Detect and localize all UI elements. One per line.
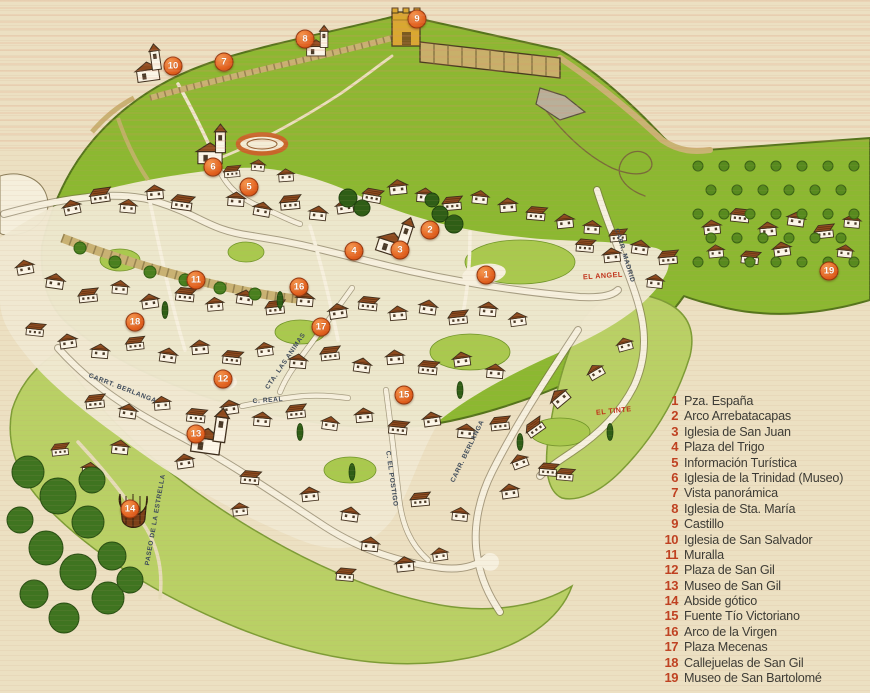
tree [144,266,156,278]
tree [60,554,96,590]
tree [29,531,63,565]
map-marker-16[interactable]: 16 [290,278,309,297]
legend-label: Arco Arrebatacapas [684,409,791,423]
legend-number: 17 [656,639,678,654]
legend-number: 15 [656,608,678,623]
tree [117,567,143,593]
tree [758,233,768,243]
legend-label: Fuente Tío Victoriano [684,609,800,623]
legend-number: 11 [656,547,678,562]
map-marker-2[interactable]: 2 [421,221,440,240]
legend-label: Iglesia de Sta. María [684,502,795,516]
map-marker-6[interactable]: 6 [204,158,223,177]
legend-label: Pza. España [684,394,753,408]
legend-number: 12 [656,562,678,577]
tree [445,215,463,233]
cypress-tree [162,302,168,319]
legend-number: 4 [656,439,678,454]
legend-number: 5 [656,455,678,470]
tree [823,209,833,219]
house [409,492,431,507]
legend-item-8: 8Iglesia de Sta. María [656,501,843,516]
legend-label: Información Turística [684,456,797,470]
legend-item-15: 15Fuente Tío Victoriano [656,608,843,623]
tree [771,161,781,171]
legend-item-14: 14Abside gótico [656,593,843,608]
tree [49,603,79,633]
map-marker-11[interactable]: 11 [187,271,206,290]
tree [836,233,846,243]
map-marker-9[interactable]: 9 [408,10,427,29]
legend-label: Iglesia de la Trinidad (Museo) [684,471,843,485]
legend-number: 2 [656,408,678,423]
legend-item-10: 10Iglesia de San Salvador [656,532,843,547]
legend-number: 7 [656,485,678,500]
tree [849,209,859,219]
tree [214,282,226,294]
legend-number: 8 [656,501,678,516]
legend-number: 14 [656,593,678,608]
tree [719,257,729,267]
house [450,506,469,521]
legend-label: Iglesia de San Salvador [684,533,812,547]
map-marker-15[interactable]: 15 [395,386,414,405]
tree [40,478,76,514]
legend-item-18: 18Callejuelas de San Gil [656,655,843,670]
church-building [132,43,164,82]
legend-item-13: 13Museo de San Gil [656,578,843,593]
house [538,463,559,477]
map-marker-4[interactable]: 4 [345,242,364,261]
legend-label: Arco de la Virgen [684,625,777,639]
map-marker-5[interactable]: 5 [240,178,259,197]
legend-item-6: 6Iglesia de la Trinidad (Museo) [656,470,843,485]
house [431,547,450,562]
map-marker-10[interactable]: 10 [164,57,183,76]
tree [693,209,703,219]
tree [20,580,48,608]
tree [72,506,104,538]
map-marker-3[interactable]: 3 [391,241,410,260]
tree [784,233,794,243]
legend-number: 10 [656,532,678,547]
legend-number: 16 [656,624,678,639]
legend-label: Plaza de San Gil [684,563,775,577]
tree [693,257,703,267]
tree [797,209,807,219]
tree [693,161,703,171]
tree [771,209,781,219]
legend-number: 3 [656,424,678,439]
legend-item-2: 2Arco Arrebatacapas [656,408,843,423]
tree [719,209,729,219]
legend-label: Museo de San Bartolomé [684,671,822,685]
legend-label: Muralla [684,548,724,562]
tree [7,507,33,533]
tree [732,233,742,243]
legend-item-19: 19Museo de San Bartolomé [656,670,843,685]
tree [823,161,833,171]
tree [758,185,768,195]
map-marker-7[interactable]: 7 [215,53,234,72]
legend-item-17: 17Plaza Mecenas [656,639,843,654]
tree [745,161,755,171]
cypress-tree [277,292,283,309]
tree [810,185,820,195]
legend-number: 13 [656,578,678,593]
tree [745,257,755,267]
legend-number: 6 [656,470,678,485]
cypress-tree [297,424,303,441]
tree [79,467,105,493]
cypress-tree [457,382,463,399]
map-marker-12[interactable]: 12 [214,370,233,389]
legend-item-11: 11Muralla [656,547,843,562]
map-marker-13[interactable]: 13 [187,425,206,444]
tree [810,233,820,243]
cypress-tree [517,434,523,451]
cypress-tree [349,464,355,481]
map-marker-19[interactable]: 19 [820,262,839,281]
legend-number: 9 [656,516,678,531]
tree [74,242,86,254]
legend-label: Callejuelas de San Gil [684,656,804,670]
tree [797,161,807,171]
tree [745,209,755,219]
tree [771,257,781,267]
legend-label: Castillo [684,517,724,531]
house [335,568,356,582]
tree [706,185,716,195]
house [509,452,531,471]
map-marker-1[interactable]: 1 [477,266,496,285]
house [489,416,511,431]
tree [354,200,370,216]
legend-item-3: 3Iglesia de San Juan [656,424,843,439]
tree [109,256,121,268]
legend-label: Plaza del Trigo [684,440,764,454]
map-legend: 1Pza. España2Arco Arrebatacapas3Iglesia … [656,393,843,685]
legend-item-9: 9Castillo [656,516,843,531]
legend-label: Vista panorámica [684,486,778,500]
tree [849,161,859,171]
legend-item-16: 16Arco de la Virgen [656,624,843,639]
tree [719,161,729,171]
legend-number: 18 [656,655,678,670]
map-marker-14[interactable]: 14 [121,500,140,519]
map-marker-17[interactable]: 17 [312,318,331,337]
map-marker-18[interactable]: 18 [126,313,145,332]
legend-item-12: 12Plaza de San Gil [656,562,843,577]
tree [249,288,261,300]
map-marker-8[interactable]: 8 [296,30,315,49]
legend-label: Plaza Mecenas [684,640,768,654]
tree [98,542,126,570]
legend-item-1: 1Pza. España [656,393,843,408]
tree [706,233,716,243]
legend-item-5: 5Información Turística [656,455,843,470]
tree [339,189,357,207]
legend-label: Museo de San Gil [684,579,781,593]
tree [425,193,439,207]
house [499,483,520,500]
legend-item-7: 7Vista panorámica [656,485,843,500]
tree [797,257,807,267]
bullring [238,135,286,154]
legend-label: Iglesia de San Juan [684,425,791,439]
legend-label: Abside gótico [684,594,757,608]
tree [784,185,794,195]
tree [836,185,846,195]
tree [732,185,742,195]
legend-number: 1 [656,393,678,408]
cypress-tree [607,424,613,441]
tree [849,257,859,267]
tree [12,456,44,488]
legend-item-4: 4Plaza del Trigo [656,439,843,454]
legend-number: 19 [656,670,678,685]
